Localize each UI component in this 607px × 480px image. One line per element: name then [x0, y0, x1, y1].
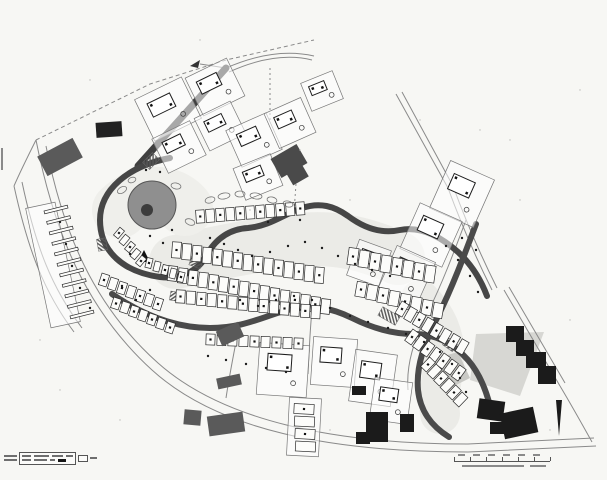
legend-row	[22, 455, 73, 457]
tree-dot	[265, 367, 267, 369]
tree-dot	[145, 169, 147, 171]
legend-left-label	[4, 459, 17, 461]
existing-building	[526, 352, 546, 368]
scan-speckle	[569, 319, 570, 320]
tree-dot	[321, 247, 323, 249]
unit-mark	[242, 303, 244, 305]
tree-dot	[71, 265, 73, 267]
scan-speckle	[39, 339, 40, 340]
scale-bar-tick	[486, 457, 487, 461]
tree-dot	[159, 171, 161, 173]
house-mark	[336, 358, 339, 361]
unit-mark	[426, 306, 429, 309]
scan-speckle	[509, 139, 510, 140]
unit-mark	[382, 294, 385, 297]
row-house-unit	[388, 290, 400, 307]
row-house-unit	[143, 293, 154, 307]
row-house-unit	[284, 262, 294, 279]
tree-dot	[329, 307, 331, 309]
tree-dot	[171, 229, 173, 231]
row-house-unit	[320, 299, 331, 315]
unit-mark	[374, 260, 376, 262]
graphic-scale-bar	[454, 454, 572, 467]
scan-speckle	[299, 149, 300, 150]
parcel	[256, 342, 310, 397]
row-house-unit	[311, 305, 321, 318]
minor-road-line	[14, 140, 36, 186]
tree-dot	[89, 307, 91, 309]
tree-dot	[354, 263, 356, 265]
scan-speckle	[349, 199, 350, 200]
minor-road-line	[226, 53, 314, 68]
tree-dot	[285, 371, 287, 373]
row-house-unit	[198, 272, 209, 288]
tree-dot	[304, 241, 306, 243]
row-house-unit	[283, 337, 292, 348]
row-house-unit	[182, 244, 192, 261]
shaded-area	[190, 60, 200, 68]
tree-dot	[209, 237, 211, 239]
tree-dot	[311, 299, 313, 301]
legend-left-labels	[4, 455, 17, 461]
tree-dot	[469, 275, 471, 277]
row-house-unit	[286, 203, 295, 217]
unit-mark	[239, 212, 241, 214]
legend-box	[19, 452, 76, 465]
crosswalk-hatch	[97, 238, 108, 251]
unit-mark	[352, 255, 354, 257]
house-mark	[286, 366, 289, 369]
scale-label-bar	[458, 454, 465, 456]
plan-legend	[4, 452, 97, 464]
unit-mark	[209, 338, 211, 340]
scale-bar-tick	[550, 457, 551, 461]
row-house-unit	[186, 291, 196, 304]
tree-dot	[275, 299, 277, 301]
existing-building	[356, 432, 370, 444]
row-house-unit	[107, 277, 118, 291]
tree-dot	[59, 221, 61, 223]
row-house-unit	[226, 207, 235, 221]
pond	[128, 181, 176, 229]
unit-mark	[196, 252, 198, 254]
tree-dot	[367, 321, 369, 323]
tree-dot	[79, 287, 81, 289]
row-house-unit	[432, 302, 444, 319]
row-house-unit	[358, 250, 370, 268]
unit-mark	[298, 270, 300, 272]
unit-mark	[279, 209, 281, 211]
scale-label-bar	[533, 454, 540, 456]
house-mark	[323, 349, 326, 352]
tree-dot	[237, 249, 239, 251]
legend-text-bar	[34, 455, 49, 457]
unit-mark	[396, 265, 398, 267]
unit-mark	[304, 433, 306, 435]
scale-label-bar	[503, 454, 510, 456]
existing-building	[37, 138, 83, 176]
unit-mark	[299, 207, 301, 209]
site-plan-drawing	[0, 0, 607, 480]
tree-dot	[269, 251, 271, 253]
scan-speckle	[119, 419, 120, 420]
unit-mark	[318, 274, 320, 276]
scan-speckle	[579, 89, 580, 90]
scan-speckle	[89, 79, 90, 80]
tree-dot	[457, 259, 459, 261]
unit-mark	[360, 288, 363, 291]
scale-caption-bar	[530, 465, 546, 467]
row-house-unit	[207, 293, 217, 306]
tree-dot	[239, 299, 241, 301]
tree-dot	[405, 333, 407, 335]
house-mark	[375, 374, 378, 377]
tree-dot	[225, 359, 227, 361]
legend-text-bar	[50, 459, 55, 461]
row-house-unit	[246, 206, 255, 220]
tree-dot	[65, 243, 67, 245]
legend-text-bar	[66, 455, 73, 457]
unit-mark	[237, 260, 239, 262]
row-house-unit	[294, 416, 314, 427]
legend-row	[22, 459, 73, 462]
unit-mark	[192, 277, 194, 279]
tree-dot	[299, 219, 301, 221]
scale-caption-bar	[462, 465, 524, 467]
scale-label-bar	[473, 454, 480, 456]
unit-mark	[304, 310, 306, 312]
row-house-unit	[304, 265, 314, 282]
row-house-unit	[269, 301, 279, 314]
tree-dot	[162, 242, 164, 244]
terraced-row	[110, 297, 175, 334]
unit-mark	[275, 341, 277, 343]
tree-dot	[465, 391, 467, 393]
row-house-unit	[402, 260, 414, 278]
tree-dot	[121, 285, 123, 287]
existing-building	[216, 374, 242, 390]
tree-dot	[389, 275, 391, 277]
tree-dot	[461, 237, 463, 239]
tree-dot	[267, 221, 269, 223]
existing-building	[538, 366, 556, 384]
tree-dot	[135, 299, 137, 301]
unit-mark	[314, 303, 316, 305]
unit-mark	[216, 256, 218, 258]
unit-mark	[232, 285, 234, 287]
garden-bed	[266, 196, 277, 204]
unit-mark	[273, 294, 275, 296]
scale-caption	[462, 465, 572, 467]
unit-mark	[212, 281, 214, 283]
scanned-site-plan-page	[0, 0, 607, 480]
existing-building	[96, 121, 123, 138]
tree-dot	[349, 315, 351, 317]
tree-dot	[337, 255, 339, 257]
scale-bar-tick	[454, 457, 455, 461]
parcel	[310, 337, 357, 388]
unit-mark	[175, 249, 177, 251]
row-house-unit	[222, 251, 232, 268]
legend-tail-bar	[90, 457, 97, 459]
existing-building	[207, 412, 245, 437]
house-mark	[382, 389, 385, 392]
house-footprint	[360, 361, 382, 380]
row-house-unit	[206, 209, 215, 223]
row-house-unit	[202, 247, 212, 264]
unit-mark	[263, 305, 265, 307]
row-house-unit	[266, 204, 275, 218]
tree-dot	[387, 327, 389, 329]
legend-black-swatch	[58, 459, 66, 462]
scale-bar-tick	[534, 457, 535, 461]
tree-dot	[459, 377, 461, 379]
tree-dot	[149, 235, 151, 237]
unit-mark	[253, 340, 255, 342]
scale-label-bar	[488, 454, 495, 456]
tree-dot	[371, 269, 373, 271]
tree-dot	[475, 249, 477, 251]
tree-dot	[287, 245, 289, 247]
row-house-unit	[228, 296, 238, 309]
row-house-unit	[290, 303, 300, 316]
scale-bar-line	[454, 457, 550, 462]
garden-bed	[218, 192, 231, 200]
unit-mark	[200, 298, 202, 300]
pond-island	[141, 204, 153, 216]
row-house-unit	[248, 298, 258, 311]
unit-mark	[259, 211, 261, 213]
row-house-unit	[424, 265, 436, 283]
row-house-unit	[239, 281, 250, 297]
scan-speckle	[519, 199, 520, 200]
unit-mark	[253, 290, 255, 292]
row-house-unit	[366, 284, 378, 301]
existing-building	[490, 422, 506, 434]
minor-road-line	[560, 386, 592, 442]
tree-dot	[149, 289, 151, 291]
unit-mark	[418, 270, 420, 272]
tree-dot	[129, 253, 131, 255]
scale-bar-tick	[518, 457, 519, 461]
tree-dot	[245, 363, 247, 365]
unit-mark	[257, 263, 259, 265]
unit-mark	[303, 408, 305, 410]
row-house-unit	[125, 285, 136, 299]
scale-bar-tick	[470, 457, 471, 461]
tree-dot	[451, 363, 453, 365]
legend-text-bar	[34, 459, 47, 461]
legend-text-bar	[52, 455, 63, 457]
scan-speckle	[249, 209, 250, 210]
tree-dot	[293, 295, 295, 297]
scan-speckle	[419, 119, 420, 120]
existing-building	[506, 326, 524, 342]
row-house-unit	[259, 285, 270, 301]
house-footprint	[379, 387, 399, 403]
tree-dot	[257, 305, 259, 307]
scan-speckle	[59, 389, 60, 390]
row-house-unit	[218, 277, 229, 293]
scan-speckle	[479, 129, 480, 130]
row-house-unit	[295, 441, 315, 452]
shaded-area	[556, 400, 562, 436]
tree-dot	[223, 243, 225, 245]
legend-end-box	[78, 455, 88, 462]
existing-building	[183, 409, 201, 425]
unit-mark	[297, 342, 299, 344]
row-house-unit	[261, 336, 270, 347]
unit-mark	[179, 295, 181, 297]
house-mark	[363, 363, 366, 366]
existing-building	[352, 386, 366, 395]
scale-bar-tick	[502, 457, 503, 461]
parcel	[301, 71, 344, 112]
row-house-unit	[380, 255, 392, 273]
scale-label-bar	[518, 454, 525, 456]
tree-dot	[207, 355, 209, 357]
legend-text-bar	[22, 455, 31, 457]
legend-text-bar	[22, 459, 31, 461]
tree-dot	[439, 351, 441, 353]
tree-dot	[423, 341, 425, 343]
unit-mark	[219, 214, 221, 216]
unit-mark	[199, 215, 201, 217]
unit-mark	[294, 299, 296, 301]
tree-dot	[251, 255, 253, 257]
scan-speckle	[329, 429, 330, 430]
scan-speckle	[199, 39, 200, 40]
legend-left-label	[4, 455, 17, 457]
unit-mark	[283, 307, 285, 309]
existing-building	[400, 414, 414, 432]
unit-mark	[221, 300, 223, 302]
tree-dot	[477, 291, 479, 293]
unit-mark	[277, 267, 279, 269]
scan-speckle	[549, 429, 550, 430]
tree-dot	[445, 245, 447, 247]
scale-bar-labels	[458, 454, 572, 456]
row-house-unit	[263, 258, 273, 275]
house-mark	[392, 397, 395, 400]
house-mark	[270, 355, 273, 358]
